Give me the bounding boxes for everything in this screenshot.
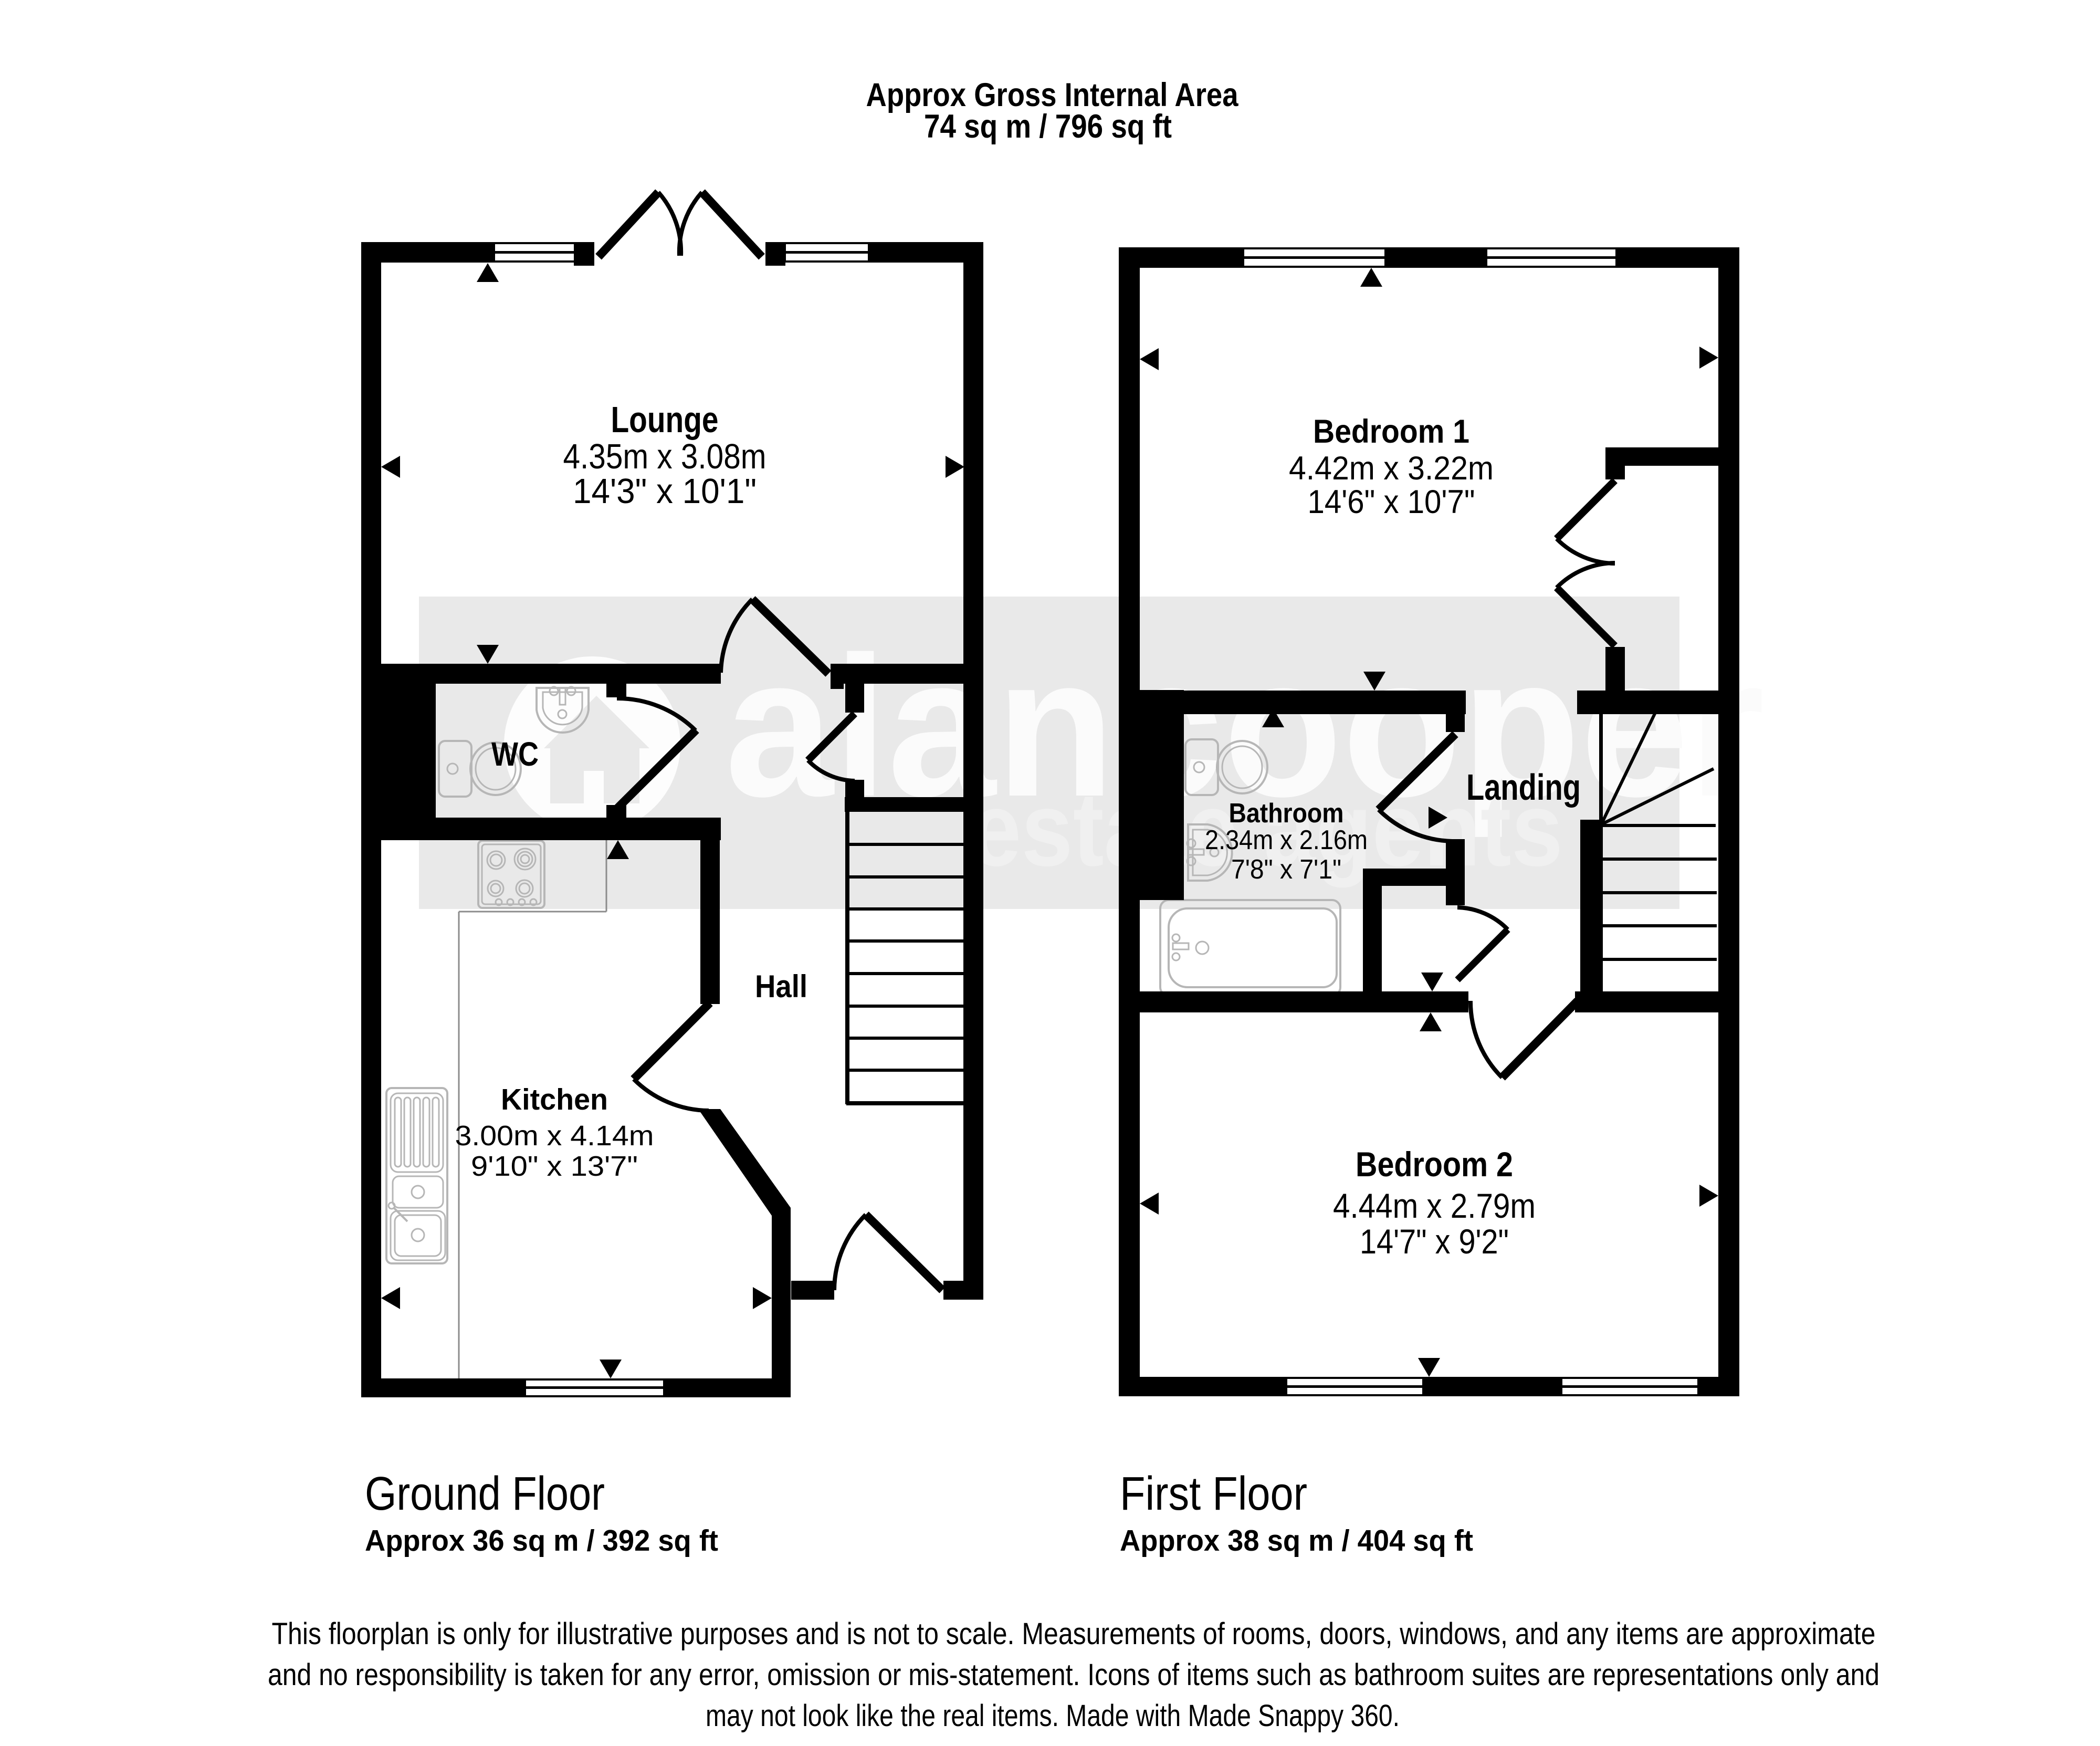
svg-text:Approx 38 sq m / 404 sq ft: Approx 38 sq m / 404 sq ft	[1120, 1524, 1473, 1557]
svg-text:9'10" x 13'7": 9'10" x 13'7"	[471, 1151, 638, 1182]
svg-text:Bedroom 1: Bedroom 1	[1313, 413, 1469, 450]
svg-text:Approx 36 sq m / 392 sq ft: Approx 36 sq m / 392 sq ft	[365, 1524, 718, 1557]
svg-text:4.42m x 3.22m: 4.42m x 3.22m	[1289, 450, 1494, 487]
svg-text:14'7" x 9'2": 14'7" x 9'2"	[1360, 1222, 1509, 1261]
svg-text:WC: WC	[491, 735, 539, 773]
svg-text:Bedroom 2: Bedroom 2	[1356, 1145, 1513, 1184]
svg-text:14'3" x 10'1": 14'3" x 10'1"	[573, 472, 757, 511]
svg-text:Bathroom: Bathroom	[1229, 798, 1344, 829]
svg-text:4.44m x 2.79m: 4.44m x 2.79m	[1333, 1186, 1536, 1225]
svg-text:Lounge: Lounge	[611, 399, 719, 440]
svg-text:Kitchen: Kitchen	[501, 1083, 608, 1116]
svg-text:Hall: Hall	[755, 969, 807, 1004]
svg-text:Landing: Landing	[1466, 767, 1581, 808]
svg-text:7'8" x 7'1": 7'8" x 7'1"	[1231, 854, 1341, 885]
svg-text:Ground Floor: Ground Floor	[365, 1468, 605, 1520]
svg-text:2.34m x 2.16m: 2.34m x 2.16m	[1205, 825, 1368, 855]
svg-text:3.00m x 4.14m: 3.00m x 4.14m	[455, 1120, 654, 1152]
svg-text:4.35m x 3.08m: 4.35m x 3.08m	[563, 437, 766, 476]
svg-text:may not look like the real ite: may not look like the real items. Made w…	[706, 1699, 1400, 1733]
svg-text:This floorplan is only for ill: This floorplan is only for illustrative …	[272, 1617, 1876, 1651]
svg-text:First Floor: First Floor	[1120, 1468, 1307, 1520]
svg-text:74 sq m / 796 sq ft: 74 sq m / 796 sq ft	[924, 108, 1172, 145]
svg-text:14'6" x 10'7": 14'6" x 10'7"	[1308, 484, 1475, 520]
svg-text:and no responsibility is taken: and no responsibility is taken for any e…	[268, 1658, 1879, 1692]
